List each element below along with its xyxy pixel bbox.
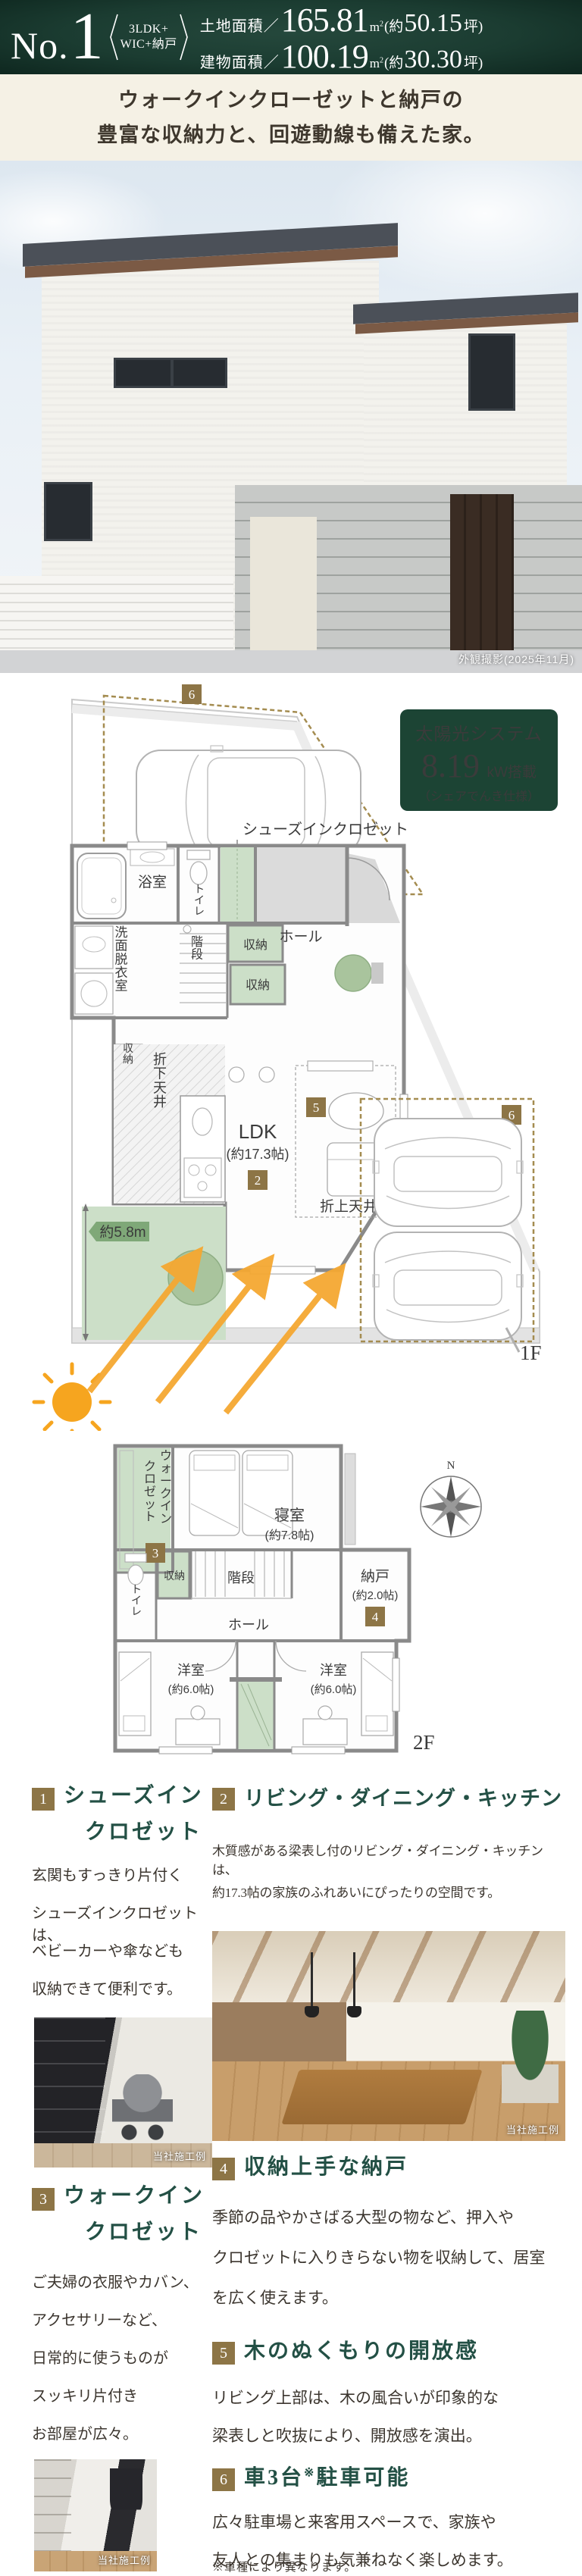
storage-c-label: 収納: [123, 1042, 133, 1066]
nando-label: 納戸: [361, 1568, 390, 1585]
badge-5-num: 5: [313, 1100, 320, 1115]
wic-label-line1: ウォークイン: [160, 1449, 172, 1526]
clothes-art: [110, 2468, 142, 2520]
pendant-light-icon: [311, 1952, 313, 2007]
washroom-label: 洗面脱衣室: [115, 925, 128, 994]
ceiling-art: [212, 1931, 565, 2002]
kitchen-counter: [180, 1096, 225, 1202]
window-slit: [114, 358, 227, 388]
feature-4-title-line1: 収納上手な納戸: [244, 2155, 408, 2179]
feature-3-title: 3 ウォークイン クロゼット: [32, 2184, 210, 2245]
feature-5-badge: 5: [212, 2342, 235, 2365]
garden-dimension-label: 約5.8m: [99, 1224, 145, 1241]
building-area-tsubo: 30.30: [404, 45, 462, 74]
nando-size-label: (約2.0帖): [352, 1589, 399, 1602]
car-icon: [373, 1119, 523, 1226]
stairs-label-1f: 階段: [191, 935, 203, 962]
plan-type: 3LDK+ WIC+納戸: [120, 22, 177, 52]
chair-icon: [191, 1706, 205, 1720]
feature-5-body: リビング上部は、木の風合いが印象的な 梁表しと吹抜により、開放感を演出。: [212, 2386, 567, 2462]
stool-icon: [229, 1067, 244, 1082]
badge-6-top-num: 6: [189, 687, 196, 702]
storage-b-label: 収納: [246, 978, 270, 992]
window-2f-right: [468, 333, 515, 411]
feature-1-body: 玄関もすっきり片付く シューズインクロゼットは、 ベビーカーや傘なども 収納でき…: [32, 1863, 210, 2014]
angle-bracket-right-icon: [179, 13, 189, 61]
plan-type-line2: WIC+納戸: [120, 37, 177, 52]
compass-n-label: N: [447, 1460, 455, 1472]
feature-4-title: 4 収納上手な納戸: [212, 2154, 408, 2180]
feature-3-badge: 3: [32, 2188, 55, 2211]
feature-6-title-suffix: 駐車可能: [316, 2466, 410, 2490]
toilet-bowl-icon: [128, 1565, 143, 1585]
floor-label-1f: 1F: [520, 1341, 542, 1364]
hall-label-2f: ホール: [228, 1617, 269, 1632]
bathtub: [77, 853, 126, 919]
flyer-page: No. 1 3LDK+ WIC+納戸 土地面積／ 165.81 m2 (約 50…: [0, 0, 582, 2576]
table-art: [281, 2070, 483, 2124]
floor-plan-2f: ウォークイン クロゼット 3 寝室 (約7.8帖) N トイレ 収納: [0, 1431, 582, 1773]
desk-icon: [303, 1719, 347, 1745]
west-room-b-size: (約6.0帖): [311, 1683, 357, 1696]
bedroom-label: 寝室: [274, 1507, 305, 1524]
area-info: 土地面積／ 165.81 m2 (約 50.15 坪) 建物面積／ 100.19…: [200, 1, 483, 74]
ldk-label: LDK: [239, 1120, 277, 1143]
building-area-paren-open: (約: [384, 52, 403, 72]
land-area-label: 土地面積／: [200, 14, 280, 36]
plan-number: No. 1: [11, 7, 104, 67]
entrance-door: [450, 494, 514, 667]
window: [127, 842, 167, 850]
building-area-label: 建物面積／: [200, 50, 280, 72]
land-area-unit: m2: [370, 20, 383, 35]
plan-type-bracket: 3LDK+ WIC+納戸: [108, 13, 189, 61]
solar-unit: kW搭載: [487, 764, 537, 781]
feature-6-title-prefix: 車3台: [244, 2466, 304, 2490]
feature-2-title-line1: リビング・ダイニング・キッチン: [244, 1787, 562, 1810]
header: No. 1 3LDK+ WIC+納戸 土地面積／ 165.81 m2 (約 50…: [0, 0, 582, 74]
up-ceiling-label: 折上天井: [320, 1198, 377, 1215]
photo-caption: 外観撮影(2025年11月): [458, 652, 574, 667]
feature-1-title-line2: クロゼット: [85, 1820, 204, 1845]
toilet-tank-2f: [125, 1554, 146, 1562]
wic-label-line2: クロゼット: [144, 1460, 156, 1524]
catch-copy: ウォークインクローゼットと納戸の 豊富な収納力と、回遊動線も備えた家。: [0, 74, 582, 161]
plan-number-prefix: No.: [11, 23, 69, 67]
floor-plan-1f: 6 太陽光システム 8.19 kW搭載 （シェアでんき仕様） シューズインクロゼ…: [0, 673, 582, 1431]
tv-board: [308, 1061, 373, 1071]
plant-art: [502, 2011, 559, 2103]
bed-icon: [189, 1451, 239, 1535]
window-1f-left: [44, 482, 92, 541]
down-ceiling-label: 折下天井: [153, 1052, 167, 1110]
balcony-2f: [345, 1454, 355, 1545]
feature-2-body: 木質感がある梁表し付のリビング・ダイニング・キッチンは、 約17.3帖の家族のふ…: [212, 1840, 567, 1923]
ldk-size-label: (約17.3帖): [226, 1147, 289, 1162]
feature-4-badge: 4: [212, 2158, 235, 2180]
west-room-a-label: 洋室: [177, 1663, 205, 1678]
solar-value: 8.19: [421, 747, 480, 784]
land-area-paren-close: 坪): [464, 15, 483, 36]
feature-6-badge: 6: [212, 2468, 235, 2491]
plant-pot: [371, 962, 383, 984]
stool-icon: [259, 1067, 274, 1082]
stroller-art: [112, 2074, 173, 2140]
feature-2-photo: 当社施工例: [212, 1931, 565, 2141]
toilet-bowl-icon: [190, 862, 207, 884]
features-section: 1 シューズイン クロゼット 玄関もすっきり片付く シューズインクロゼットは、 …: [0, 1773, 582, 2576]
feature-5-title-line1: 木のぬくもりの開放感: [244, 2340, 479, 2363]
feature-2-badge: 2: [212, 1788, 235, 1811]
plan-type-line1: 3LDK+: [120, 22, 177, 37]
catch-copy-line1: ウォークインクローゼットと納戸の: [0, 83, 582, 117]
solar-line3: （シェアでんき仕様）: [418, 790, 540, 803]
land-area-row: 土地面積／ 165.81 m2 (約 50.15 坪): [200, 1, 483, 37]
toilet-label-2f: トイレ: [131, 1583, 142, 1617]
feature-3-body: ご夫婦の衣服やカバン、 アクセサリーなど、 日常的に使うものが スッキリ片付き …: [32, 2270, 210, 2459]
feature-3-photo: 当社施工例: [34, 2459, 157, 2571]
living-table: [329, 1093, 383, 1129]
feature-3-title-line1: ウォークイン: [64, 2184, 205, 2208]
solar-line1: 太陽光システム: [415, 724, 542, 743]
feature-5-title: 5 木のぬくもりの開放感: [212, 2338, 479, 2365]
feature-6-title-sup: ※: [304, 2467, 316, 2480]
desk-icon: [176, 1719, 220, 1745]
sic-callout-label: シューズインクロゼット: [242, 821, 408, 838]
window: [292, 1747, 345, 1754]
badge-3-num: 3: [152, 1546, 159, 1560]
solar-system-box: 太陽光システム 8.19 kW搭載 （シェアでんき仕様）: [400, 709, 558, 811]
plant-icon: [335, 955, 371, 991]
vanity: [75, 926, 113, 969]
bath-counter: [130, 849, 174, 865]
building-area-row: 建物面積／ 100.19 m2 (約 30.30 坪): [200, 37, 483, 74]
closet-divider-area: [237, 1681, 274, 1749]
badge-2-num: 2: [255, 1173, 261, 1188]
feature-4-body: 季節の品やかさばる大型の物など、押入や クロゼットに入りきらない物を収納して、居…: [212, 2205, 567, 2326]
feature-6-title: 6 車3台※駐車可能: [212, 2465, 410, 2491]
entrance-area: [255, 847, 347, 923]
angle-bracket-left-icon: [108, 13, 119, 61]
bath-label: 浴室: [138, 874, 167, 890]
toilet-label-1f: トイレ: [194, 883, 205, 917]
feature-2-photo-caption: 当社施工例: [506, 2122, 559, 2136]
plan-number-value: 1: [70, 7, 104, 67]
pendant-light-icon: [353, 1952, 355, 2007]
sun-icon: [34, 1364, 110, 1431]
car-icon: [136, 746, 361, 859]
land-area-tsubo: 50.15: [404, 9, 462, 38]
building-area-value: 100.19: [281, 37, 368, 76]
hall-label-1f: ホール: [279, 929, 322, 945]
floor-label-2f: 2F: [413, 1731, 435, 1754]
stairs-label-2f: 階段: [227, 1570, 255, 1585]
west-room-b-label: 洋室: [320, 1663, 347, 1678]
feature-1-photo: 当社施工例: [34, 2017, 212, 2168]
badge-4-num: 4: [372, 1610, 379, 1624]
feature-1-title-line1: シューズイン: [64, 1784, 204, 1808]
window: [393, 1658, 399, 1711]
building-area-paren-close: 坪): [464, 52, 483, 72]
compass-icon: N: [421, 1460, 481, 1537]
feature-3-photo-caption: 当社施工例: [98, 2553, 151, 2567]
land-area-paren-open: (約: [384, 15, 403, 36]
building-area-unit: m2: [370, 56, 383, 71]
bedroom-size-label: (約7.8帖): [265, 1529, 314, 1542]
storage-2f-label: 収納: [164, 1570, 185, 1582]
feature-1-photo-caption: 当社施工例: [153, 2149, 206, 2163]
chair-icon: [318, 1706, 332, 1720]
land-area-value: 165.81: [281, 1, 368, 39]
feature-2-title: 2 リビング・ダイニング・キッチン: [212, 1784, 567, 1811]
catch-copy-line2: 豊富な収納力と、回遊動線も備えた家。: [0, 117, 582, 152]
west-room-a-size: (約6.0帖): [168, 1683, 214, 1696]
exterior-photo: 外観撮影(2025年11月): [0, 161, 582, 673]
feature-3-title-line2: クロゼット: [85, 2221, 205, 2245]
storage-a-label: 収納: [243, 938, 268, 952]
feature-6-note: ※車種により異なります。: [212, 2559, 356, 2574]
feature-1-title: 1 シューズイン クロゼット: [32, 1784, 210, 1845]
badge-6-side-num: 6: [508, 1108, 515, 1122]
feature-1-badge: 1: [32, 1788, 55, 1811]
car-icon: [373, 1232, 523, 1340]
toilet-tank: [187, 850, 210, 859]
window: [159, 1747, 212, 1754]
